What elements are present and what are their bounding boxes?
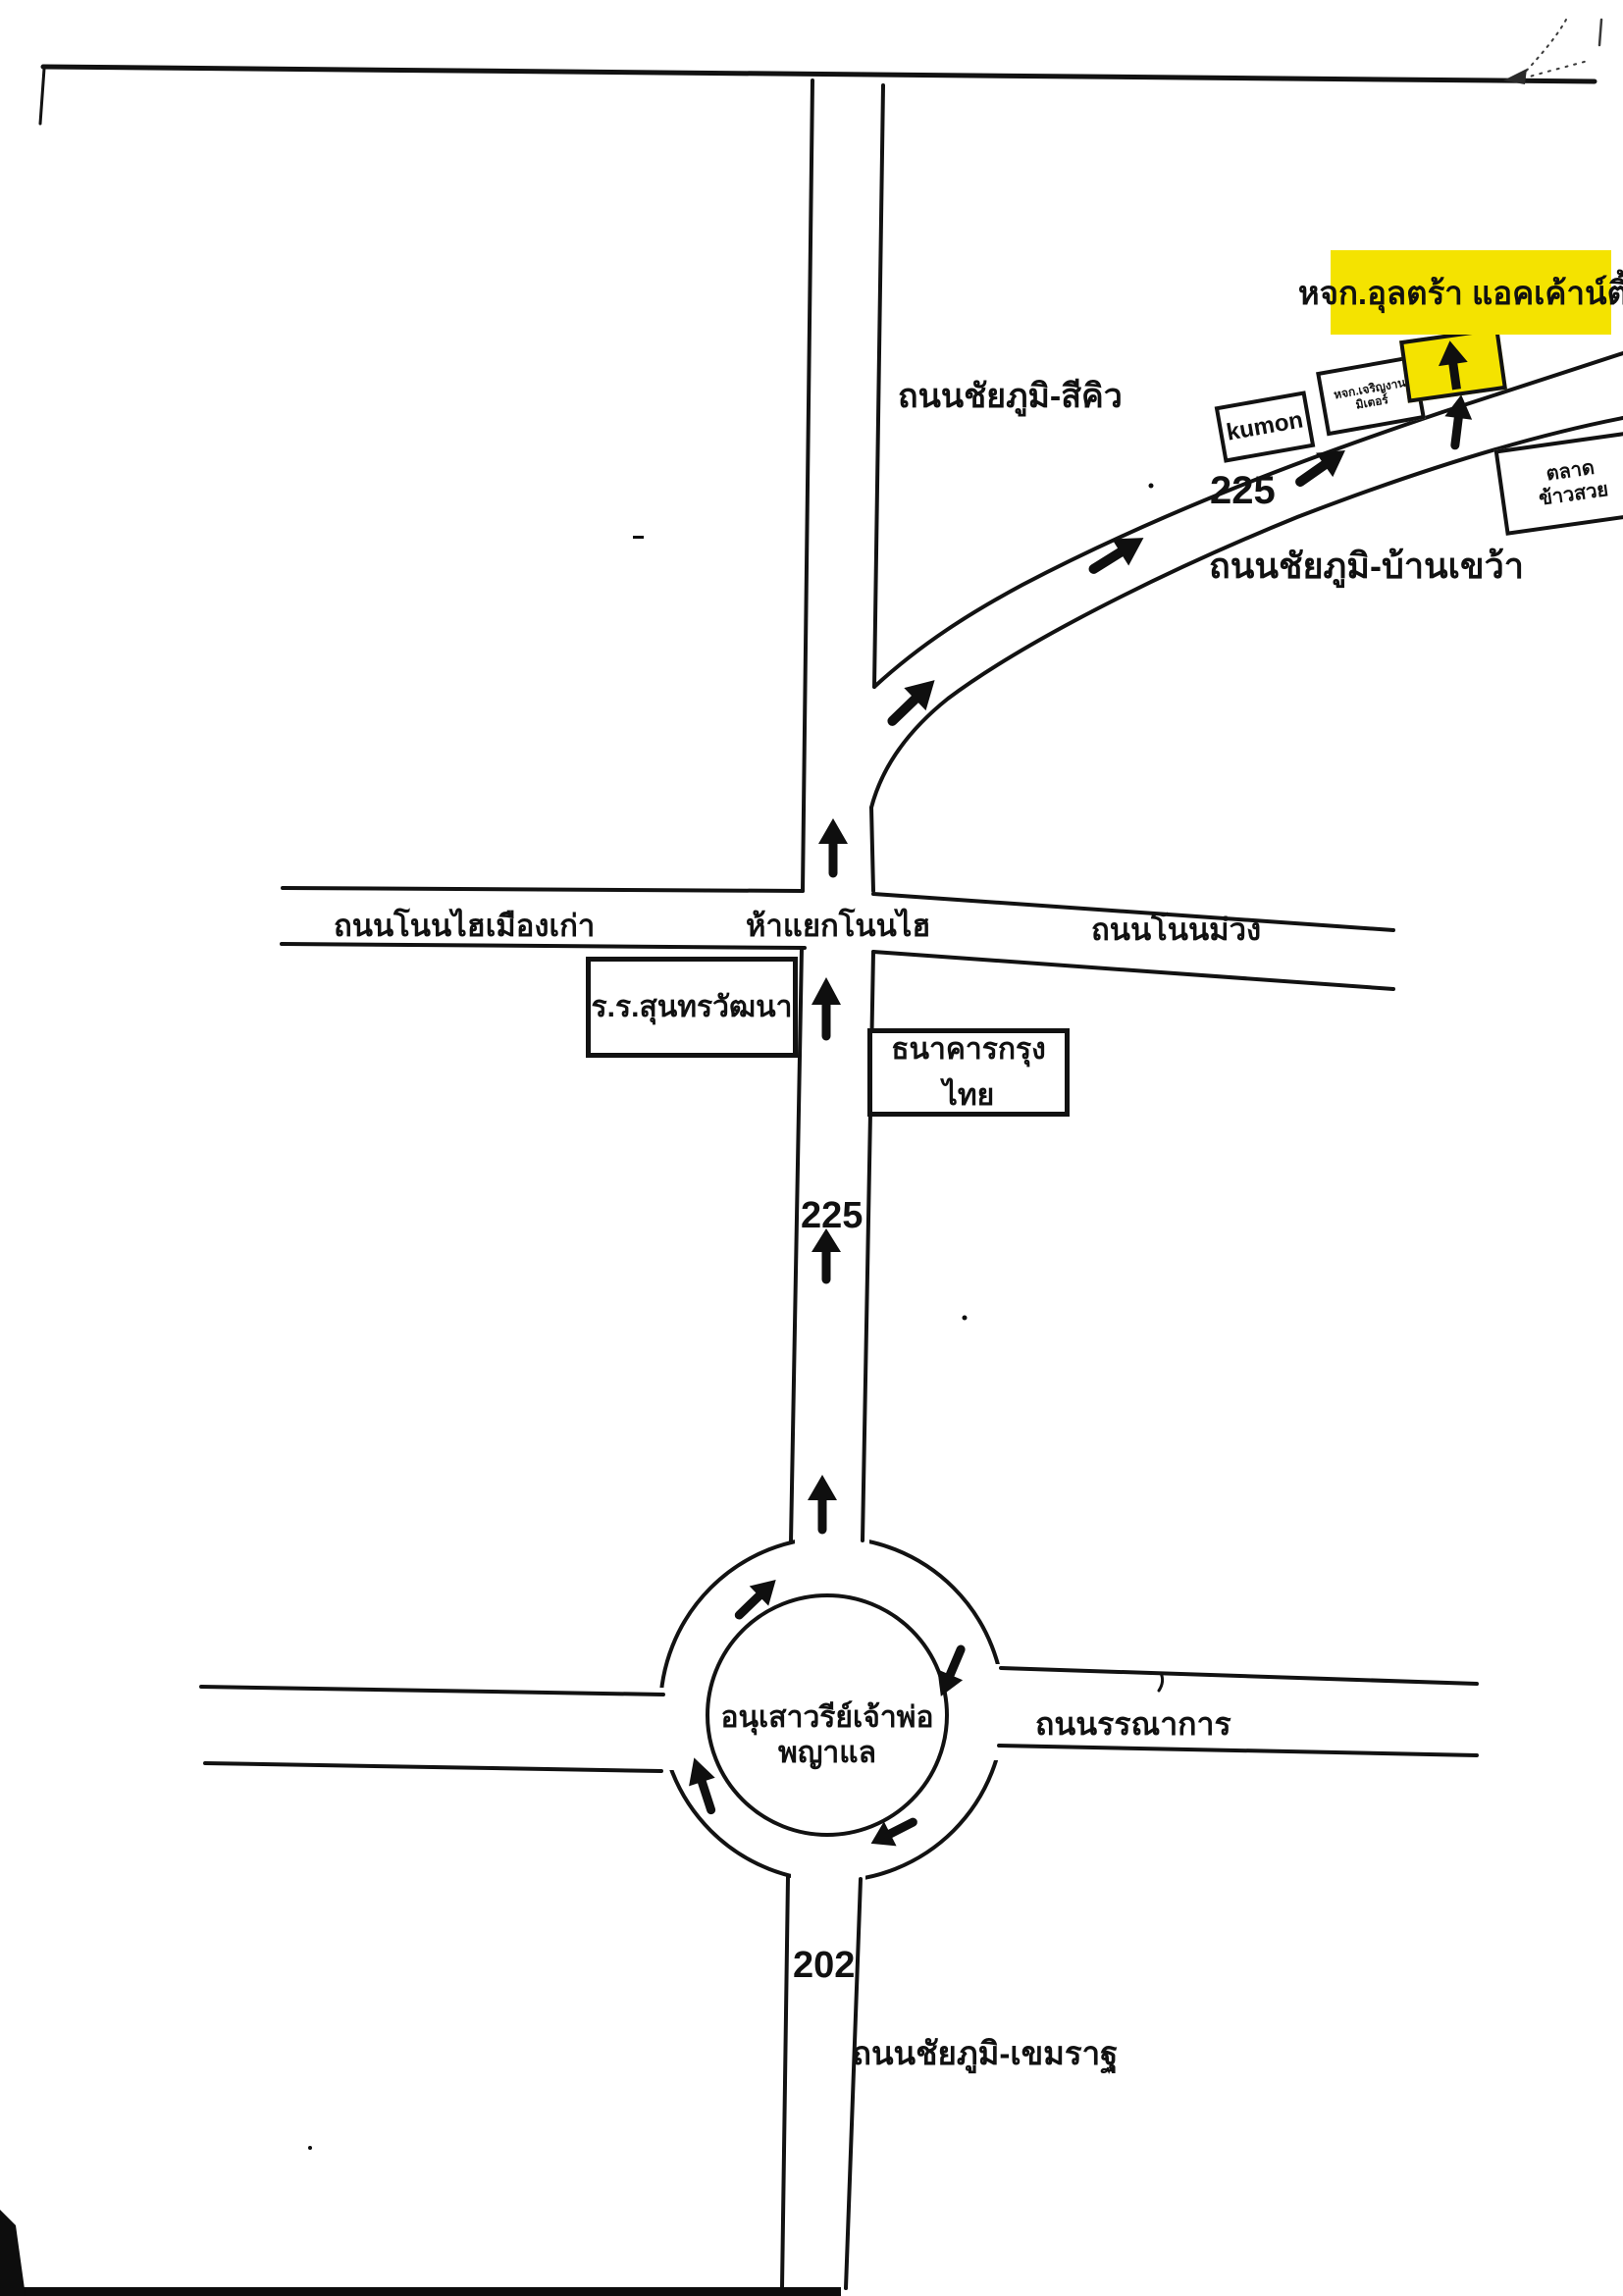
direction-arrow [881, 669, 945, 733]
road-west-horizontal [201, 1687, 663, 1771]
road-label-chaiyaphum-bankhwao: ถนนชัยภูมิ-บ้านเขว้า [1209, 538, 1524, 594]
road-label-chaiyaphum-khemarat: ถนนชัยภูมิ-เขมราฐ [852, 2027, 1118, 2079]
road-south-202 [782, 1877, 861, 2288]
direction-arrow [928, 1644, 973, 1702]
route-number-202: 202 [793, 1945, 855, 1987]
top-border-line [40, 67, 1595, 124]
direction-arrow [818, 818, 848, 873]
building-krungthai-bank: ธนาคารกรุงไทย [867, 1028, 1070, 1117]
up-arrow-icon [1428, 336, 1478, 394]
scanned-route-map: หจก.อุลตร้า แอคเค้าน์ติ้ง ถนนชัยภูมิ-สีค… [0, 0, 1623, 2296]
monument-label: อนุเสาวรีย์เจ้าพ่อ พญาแล [702, 1700, 953, 1771]
direction-arrow [1085, 525, 1152, 583]
pen-squiggle [1503, 20, 1601, 84]
monument-label-line1: อนุเสาวรีย์เจ้าพ่อ [721, 1701, 934, 1734]
building-school: ร.ร.สุนทรวัฒนา [586, 957, 798, 1058]
road-north-vertical [803, 80, 883, 891]
company-highlight-label: หจก.อุลตร้า แอคเค้าน์ติ้ง [1331, 250, 1611, 335]
road-label-bannakan: ถนนรรณาการ [1035, 1699, 1231, 1749]
road-label-nonmuang: ถนนโนนม่วง [1091, 905, 1261, 954]
junction-label-hayaek-nonhai: ห้าแยกโนนไฮ [746, 901, 930, 950]
road-label-nonhai-muangkao: ถนนโนนไฮเมืองเก่า [334, 901, 595, 950]
monument-label-line2: พญาแล [778, 1737, 876, 1769]
route-number-225-curve: 225 [1210, 469, 1276, 513]
scan-marks [0, 329, 1423, 2296]
road-label-chaiyaphum-sikhio: ถนนชัยภูมิ-สีคิว [898, 369, 1123, 422]
direction-arrow [1441, 392, 1475, 446]
direction-arrow [811, 977, 841, 1036]
direction-arrow [808, 1475, 837, 1530]
route-number-225-mid: 225 [801, 1195, 863, 1237]
